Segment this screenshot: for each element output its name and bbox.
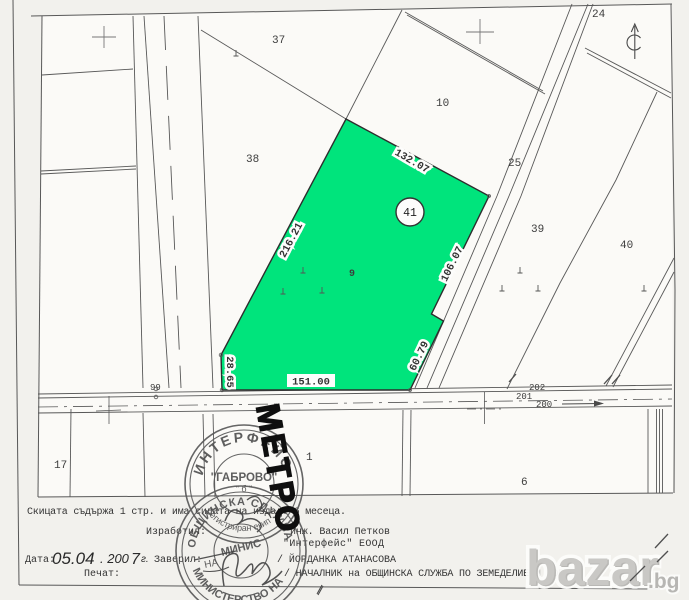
svg-text:151.00: 151.00	[292, 377, 330, 389]
svg-text:"Интерфейс" ЕООД: "Интерфейс" ЕООД	[283, 537, 384, 550]
svg-text:40: 40	[620, 240, 633, 252]
svg-text:9: 9	[349, 269, 355, 280]
svg-text:39: 39	[531, 224, 544, 236]
svg-text:7: 7	[131, 551, 141, 568]
svg-text:bazar: bazar	[526, 540, 659, 596]
svg-text:38: 38	[246, 154, 259, 166]
svg-text:25: 25	[508, 158, 521, 170]
svg-text:.bg: .bg	[648, 570, 680, 593]
svg-text:99: 99	[150, 383, 161, 393]
svg-text:. 200: . 200	[100, 551, 130, 566]
svg-text:6: 6	[521, 477, 528, 489]
svg-text:28.65: 28.65	[223, 356, 235, 388]
svg-text:37: 37	[272, 35, 285, 47]
svg-text:Печат:: Печат:	[84, 569, 120, 580]
svg-text:201: 201	[516, 392, 532, 402]
svg-text:10: 10	[436, 98, 449, 110]
svg-text:41: 41	[403, 207, 417, 220]
svg-text:1: 1	[306, 452, 313, 464]
svg-text:" б ": " б "	[236, 484, 253, 494]
svg-text:24: 24	[592, 9, 606, 21]
svg-text:г.: г.	[141, 554, 149, 565]
svg-text:/ ЙОРДАНКА АТАНАСОВА: / ЙОРДАНКА АТАНАСОВА	[277, 552, 396, 566]
svg-text:17: 17	[54, 460, 67, 472]
svg-text:05.04: 05.04	[52, 549, 95, 568]
svg-text:200: 200	[536, 400, 552, 410]
svg-text:Дата:: Дата:	[25, 555, 55, 566]
